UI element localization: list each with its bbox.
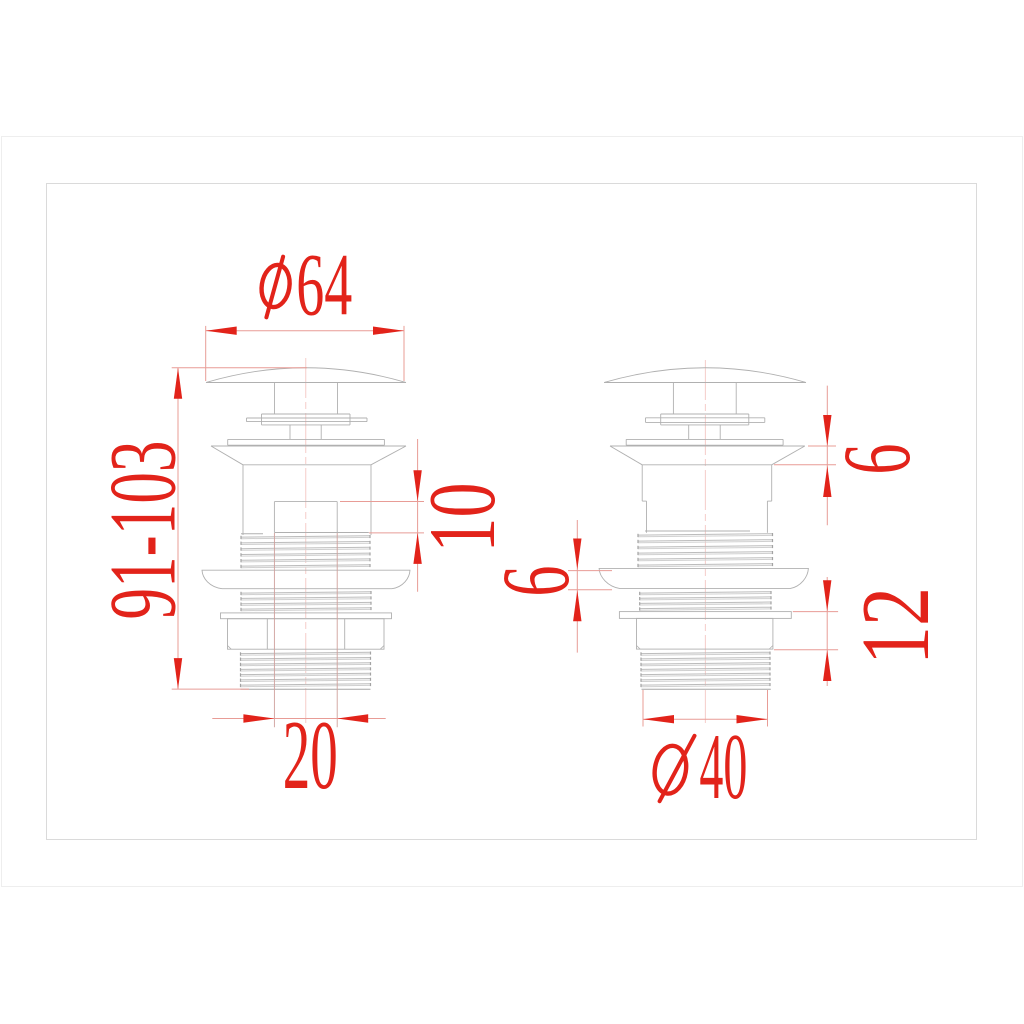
svg-text:6: 6: [482, 566, 589, 597]
svg-text:64: 64: [296, 237, 352, 335]
svg-text:91-103: 91-103: [90, 441, 196, 620]
svg-text:6: 6: [823, 444, 930, 475]
svg-text:12: 12: [842, 587, 949, 665]
svg-text:20: 20: [283, 701, 338, 810]
svg-text:10: 10: [409, 483, 515, 553]
svg-text:40: 40: [699, 715, 747, 819]
